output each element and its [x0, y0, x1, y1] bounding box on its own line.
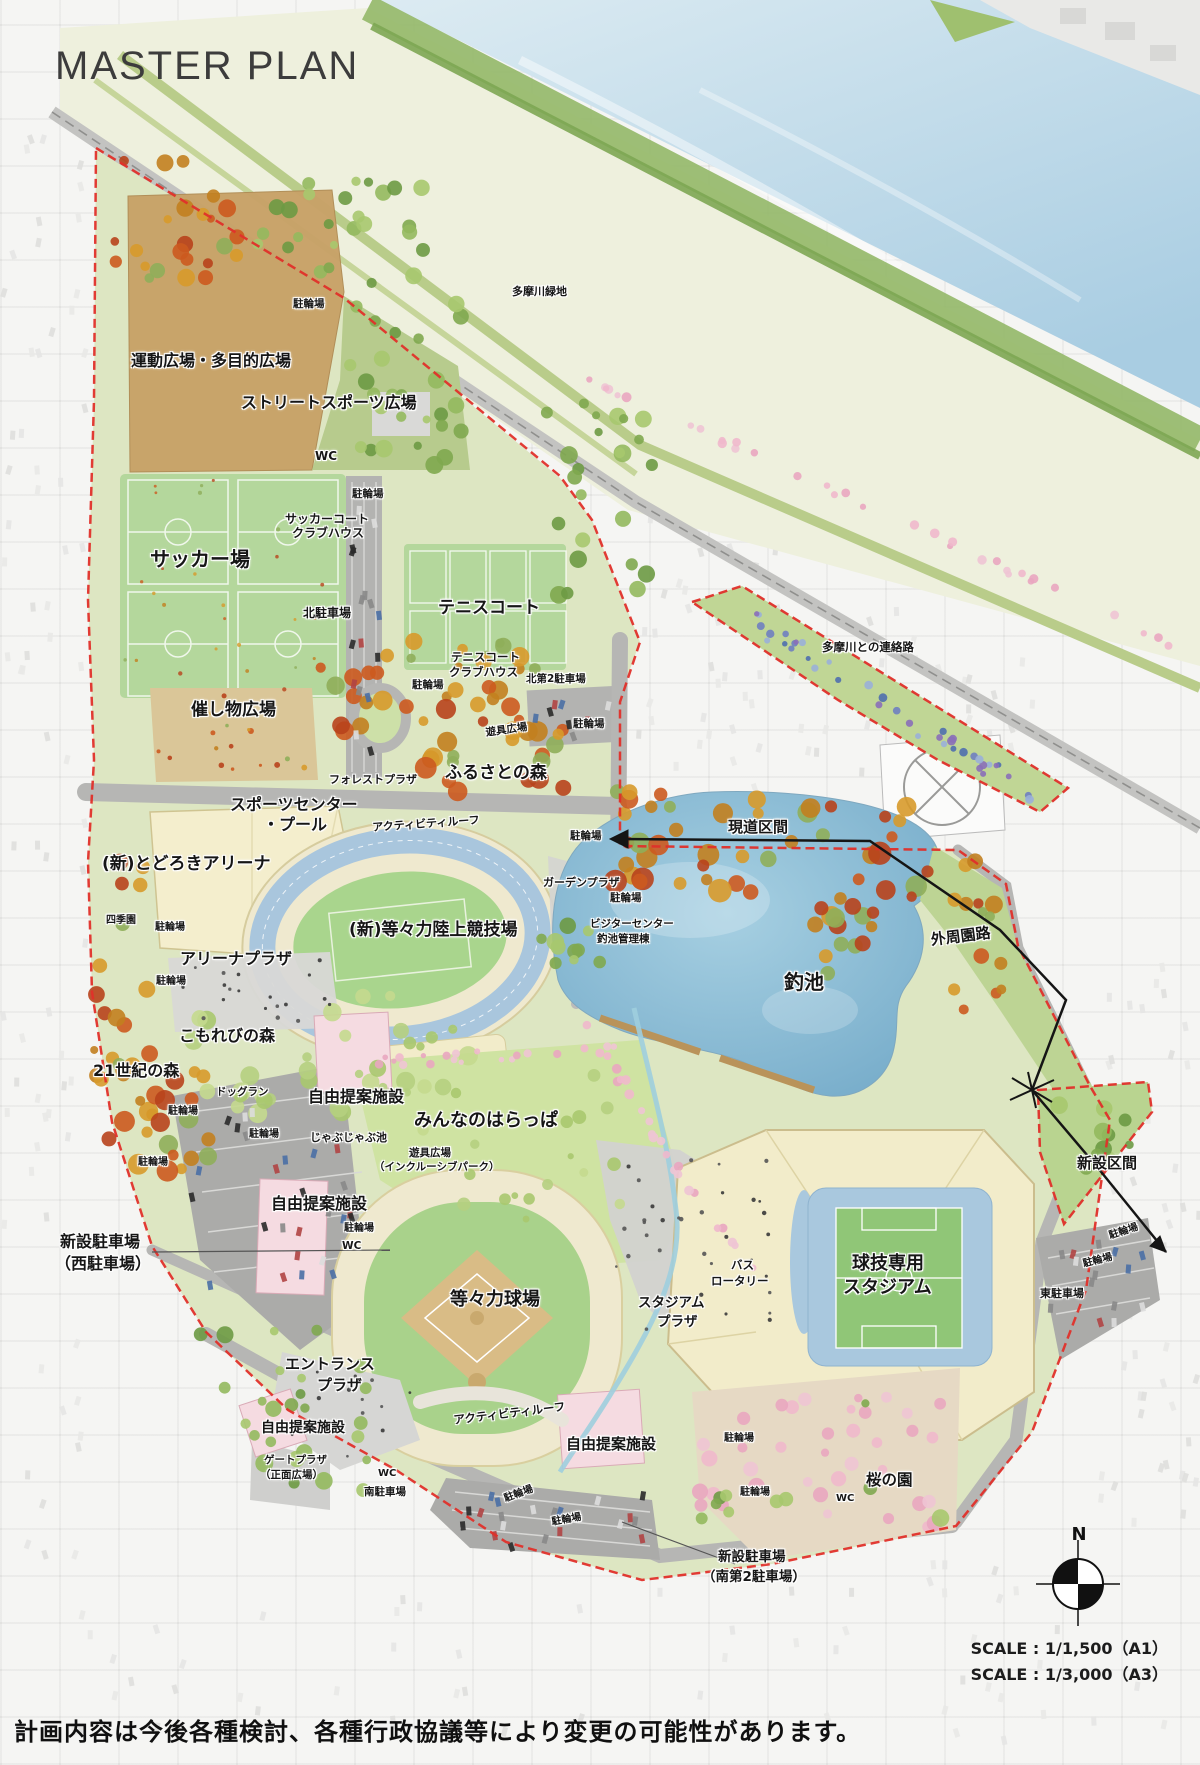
- page-title: MASTER PLAN: [55, 44, 359, 89]
- map-illustration: [0, 0, 1200, 1765]
- compass-north-label: N: [1062, 1524, 1096, 1545]
- scale-info: SCALE : 1/1,500（A1） SCALE : 1/3,000（A3）: [971, 1636, 1168, 1689]
- disclaimer-note: 計画内容は今後各種検討、各種行政協議等により変更の可能性があります。: [14, 1712, 861, 1747]
- scale-a1: SCALE : 1/1,500（A1）: [971, 1636, 1168, 1662]
- cherry-garden-zone: [692, 1368, 960, 1560]
- scale-a3: SCALE : 1/3,000（A3）: [971, 1662, 1168, 1688]
- compass-icon: [1036, 1540, 1120, 1626]
- event-plaza-zone: [150, 688, 318, 782]
- master-plan-map: 多摩川緑地駐輪場運動広場・多目的広場ストリートスポーツ広場WC駐輪場サッカーコー…: [0, 0, 1200, 1765]
- soccer-fields: [120, 474, 346, 698]
